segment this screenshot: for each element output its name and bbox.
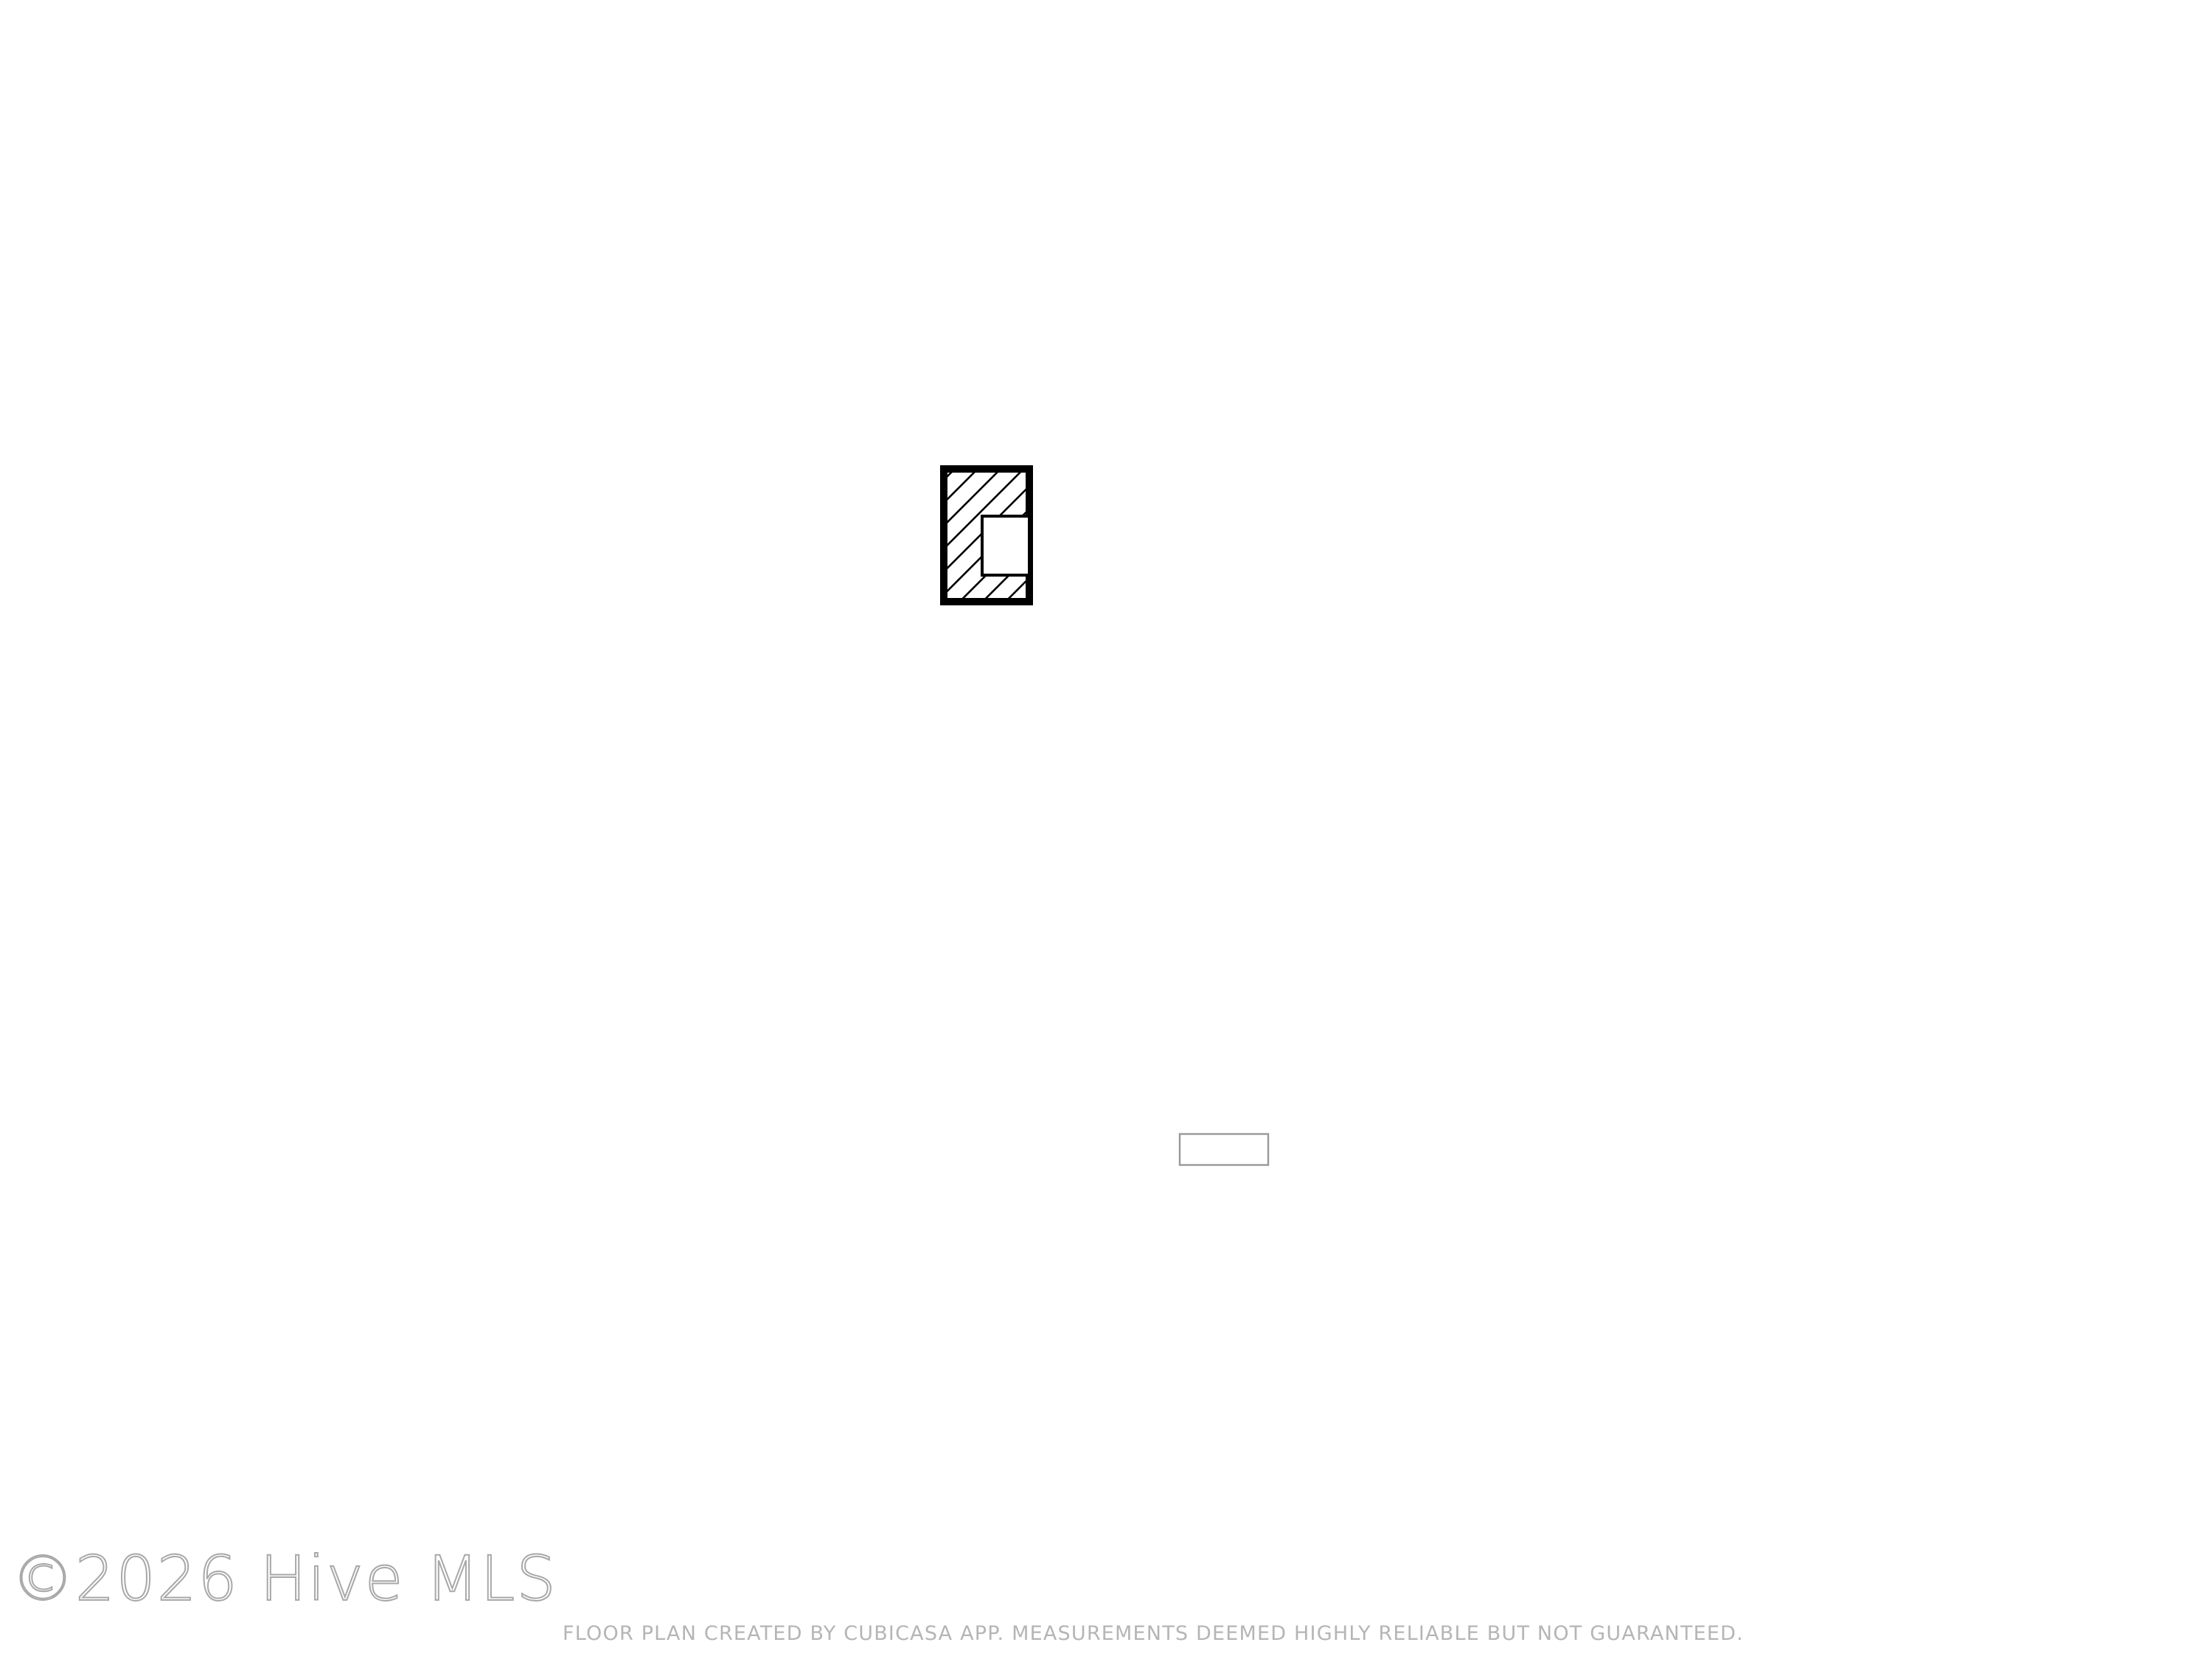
floor-plan-svg: ©2026 Hive MLS FLOOR PLAN CREATED BY CUB… bbox=[0, 0, 2212, 1659]
page-background bbox=[0, 0, 2212, 1659]
fireplace-icon bbox=[944, 469, 1029, 602]
footer-note: FLOOR PLAN CREATED BY CUBICASA APP. MEAS… bbox=[563, 1622, 1744, 1645]
watermark: ©2026 Hive MLS bbox=[12, 1543, 557, 1615]
